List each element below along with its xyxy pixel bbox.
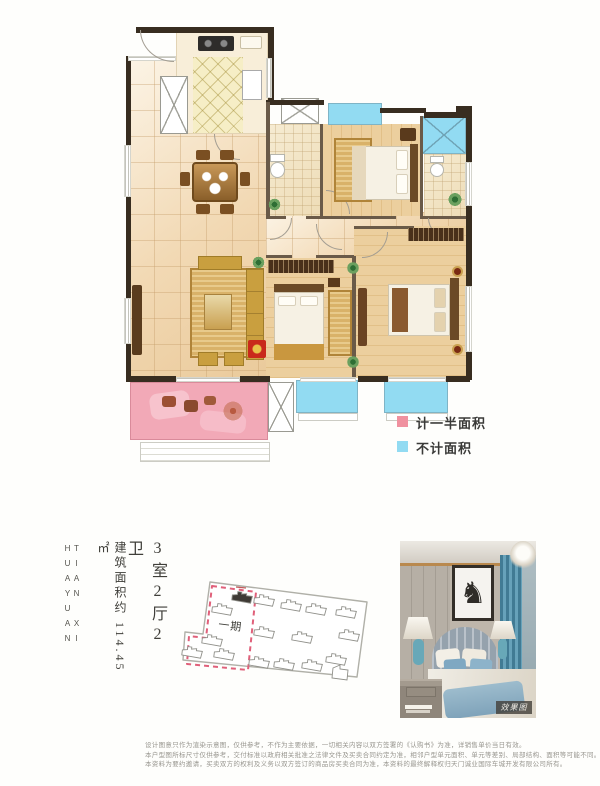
stove-icon (198, 36, 234, 51)
pillow (278, 296, 296, 306)
bed-headboard (410, 144, 418, 202)
unit-area-label: 建筑面积约 114.45㎡ (95, 541, 129, 681)
table-lamp-base (498, 639, 507, 659)
chair (196, 204, 210, 214)
dining-table (192, 162, 238, 202)
horse-artwork-frame: ♞ (452, 565, 494, 621)
window (388, 377, 446, 382)
sofa (198, 256, 242, 270)
partition (316, 255, 354, 258)
shaft-box (160, 76, 188, 134)
window (465, 162, 472, 206)
dresser (400, 128, 416, 141)
wall (126, 376, 176, 382)
tv-cabinet (132, 285, 142, 355)
tv-stand (248, 340, 266, 358)
coffee-table (204, 294, 232, 330)
brand-vertical-name: TIAN XI HUAYUAN (63, 544, 81, 716)
wall (380, 108, 426, 113)
table-lamp-base (413, 639, 424, 665)
bed-blanket (352, 146, 366, 200)
sink-icon (240, 36, 262, 49)
disclaimer-line: 设计图意只作为渲染示意图，仅供参考，不作为主要依据，一切相关内容以双方签署的《认… (145, 741, 595, 751)
wall (240, 376, 270, 382)
legend: 计一半面积 不计面积 (396, 412, 516, 458)
render-watermark: 效果图 (496, 701, 532, 714)
pillow (434, 288, 446, 308)
disclaimer: 设计图意只作为渲染示意图，仅供参考，不作为主要依据，一切相关内容以双方签署的《认… (145, 741, 595, 773)
fridge-icon (242, 70, 262, 100)
armchair (224, 352, 244, 366)
excluded-balcony-mid (296, 380, 358, 413)
bedroom-rug (328, 290, 352, 356)
chair (180, 172, 190, 186)
bedside-lamp-icon (452, 266, 463, 277)
kitchen-tile-zone (193, 57, 243, 133)
bedside-lamp-icon (452, 344, 463, 355)
window (124, 298, 131, 344)
wall (358, 376, 388, 382)
toilet-icon (270, 154, 285, 162)
partition (266, 255, 292, 258)
window (124, 145, 131, 197)
balcony-pot-icon (184, 400, 198, 412)
bed-headboard (274, 284, 324, 292)
window (465, 286, 472, 352)
balcony-pot-icon (204, 396, 216, 405)
partition (320, 124, 323, 216)
half-area-swatch (397, 416, 408, 427)
window (266, 58, 272, 98)
bed-blanket (392, 288, 408, 332)
nightstand (328, 278, 340, 287)
window (300, 377, 356, 382)
bed-headboard (450, 278, 459, 340)
chair (220, 150, 234, 160)
plant-icon (252, 256, 265, 269)
pillow (434, 312, 446, 332)
excluded-balcony-top (328, 103, 382, 125)
wall (266, 100, 324, 105)
site-plan: 一期 (168, 568, 403, 703)
pillow (300, 296, 318, 306)
toilet-icon (430, 156, 444, 163)
plant-icon (346, 262, 360, 274)
bed-blanket (274, 344, 324, 360)
armchair (198, 352, 218, 366)
disclaimer-line: 本资料为要约邀请，买卖双方的权利及义务以双方签订的商品房买卖合同为准，本资料的最… (145, 760, 595, 770)
balcony-pot-icon (162, 396, 176, 407)
plant-icon (268, 198, 281, 211)
chair (240, 172, 250, 186)
chair (196, 150, 210, 160)
interior-photo: ♞ 效果图 (400, 541, 536, 718)
tv-cabinet (358, 288, 367, 346)
books-stack (406, 710, 430, 713)
partition (336, 216, 396, 219)
half-area-label: 计一半面积 (416, 413, 486, 432)
partition (306, 216, 336, 219)
chandelier-icon (510, 541, 536, 571)
balcony-rail (298, 413, 358, 421)
balcony-rail (140, 442, 270, 462)
pillow (396, 150, 408, 170)
flyer-page: 计一半面积 不计面积 3室2厅2卫 建筑面积约 114.45㎡ TIAN XI … (0, 0, 600, 786)
toilet-icon (270, 162, 285, 178)
partition (354, 226, 414, 229)
wardrobe (408, 228, 464, 241)
nightstand-drawer (406, 687, 436, 697)
excluded-area-swatch (397, 441, 408, 452)
window (176, 377, 240, 382)
excluded-balcony-right (384, 380, 448, 413)
excluded-area-label: 不计面积 (416, 438, 472, 457)
shaft-box (268, 382, 294, 432)
plant-icon (448, 192, 462, 207)
books-stack (405, 705, 432, 709)
wall (446, 376, 470, 382)
unit-info: 3室2厅2卫 建筑面积约 114.45㎡ TIAN XI HUAYUAN (55, 538, 155, 718)
balcony-plant-icon (222, 400, 244, 422)
toilet-icon (430, 163, 444, 177)
wardrobe (268, 260, 334, 273)
excluded-box-top-right (422, 116, 466, 154)
partition (420, 116, 423, 216)
plant-icon (346, 356, 360, 368)
pillow (396, 174, 408, 194)
chair (220, 204, 234, 214)
disclaimer-line: 本户型图所标尺寸仅供参考，交付标准以政府相关批准之法律文件及买卖合同约定为准，相… (145, 751, 595, 761)
